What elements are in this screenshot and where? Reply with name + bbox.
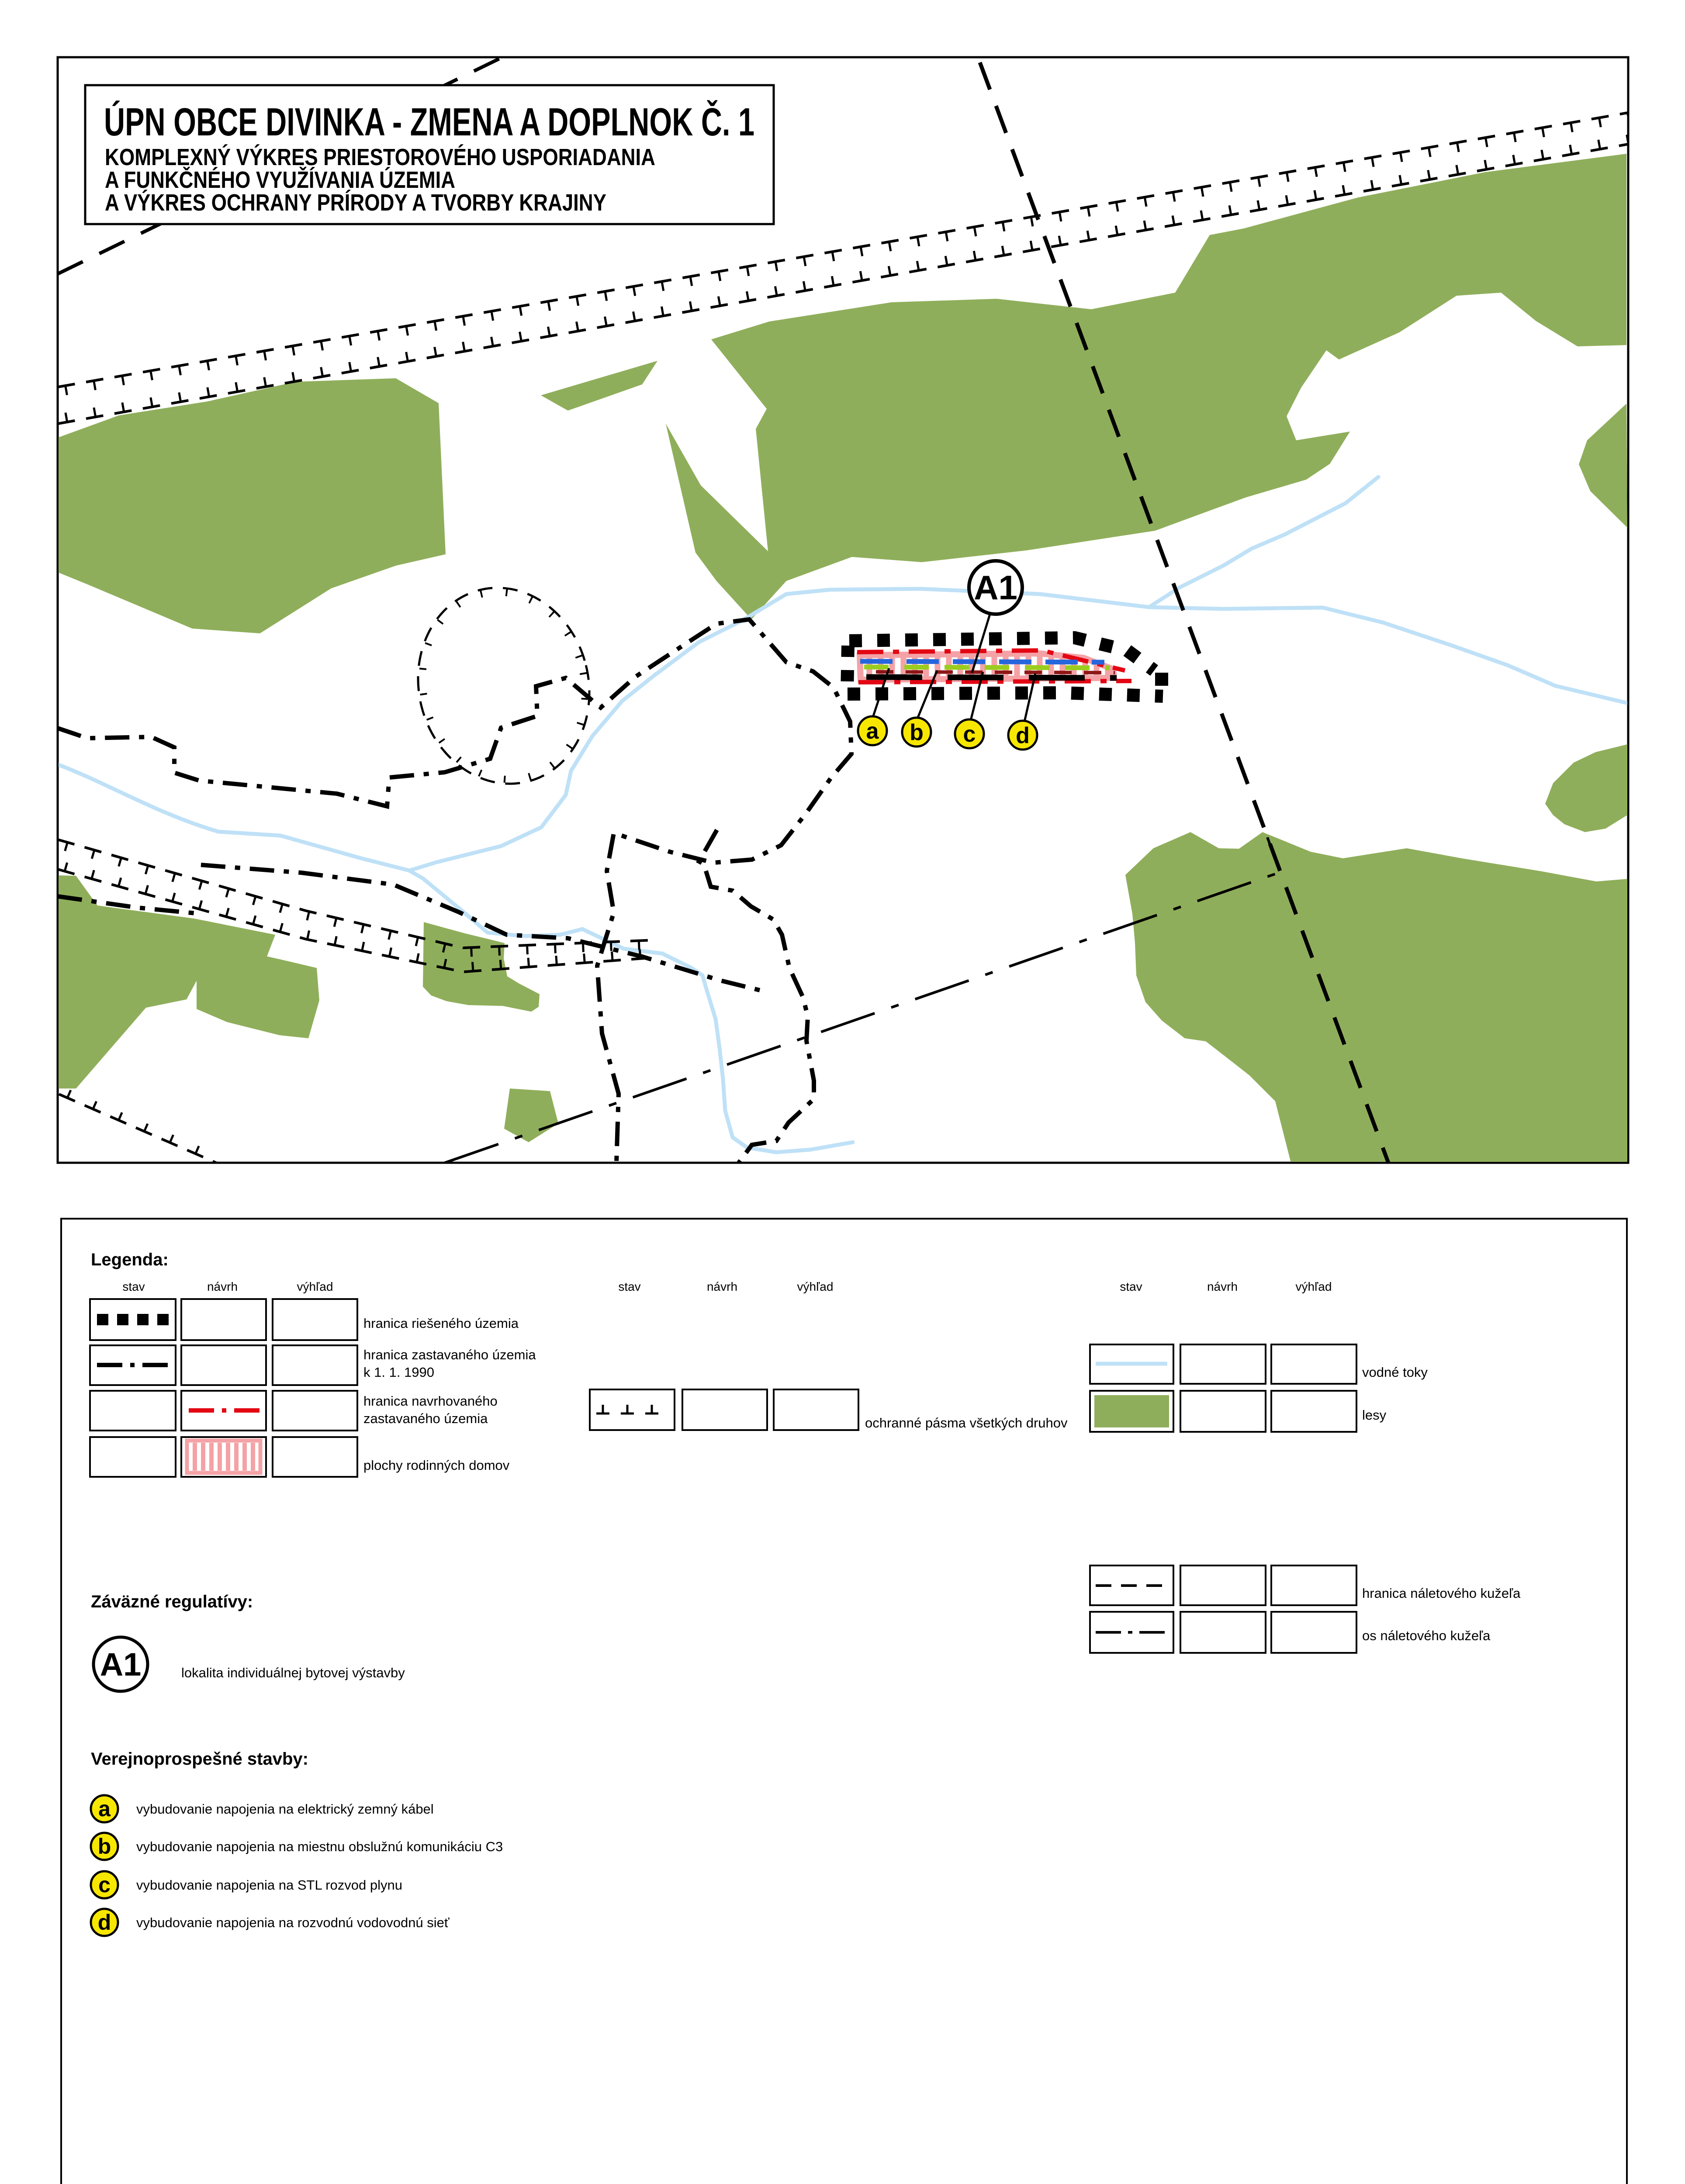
svg-text:návrh: návrh	[1207, 1280, 1238, 1293]
svg-text:výhľad: výhľad	[297, 1280, 333, 1293]
svg-text:stav: stav	[122, 1280, 145, 1293]
svg-text:os náletového kužeľa: os náletového kužeľa	[1362, 1628, 1491, 1643]
svg-text:hranica riešeného územia: hranica riešeného územia	[363, 1316, 519, 1331]
svg-text:d: d	[98, 1910, 111, 1935]
svg-text:A VÝKRES OCHRANY PRÍRODY A TVO: A VÝKRES OCHRANY PRÍRODY A TVORBY KRAJIN…	[105, 190, 606, 216]
svg-text:stav: stav	[618, 1280, 640, 1293]
svg-text:a: a	[866, 719, 879, 744]
svg-text:ÚPN OBCE DIVINKA - ZMENA A DOP: ÚPN OBCE DIVINKA - ZMENA A DOPLNOK Č. 1	[104, 100, 754, 144]
svg-text:výhľad: výhľad	[1296, 1280, 1332, 1293]
svg-text:Verejnoprospešné stavby:: Verejnoprospešné stavby:	[91, 1749, 308, 1769]
svg-text:k 1. 1. 1990: k 1. 1. 1990	[363, 1365, 434, 1380]
svg-text:hranica navrhovaného: hranica navrhovaného	[363, 1393, 498, 1409]
svg-text:vybudovanie napojenia na rozvo: vybudovanie napojenia na rozvodnú vodovo…	[136, 1915, 450, 1930]
svg-text:vybudovanie napojenia na STL r: vybudovanie napojenia na STL rozvod plyn…	[136, 1877, 402, 1893]
svg-text:a: a	[98, 1797, 111, 1821]
svg-text:lokalita individuálnej bytovej: lokalita individuálnej bytovej výstavby	[181, 1665, 405, 1680]
svg-text:KOMPLEXNÝ VÝKRES PRIESTOROVÉHO: KOMPLEXNÝ VÝKRES PRIESTOROVÉHO USPORIADA…	[105, 144, 655, 170]
svg-text:A FUNKČNÉHO VYUŽÍVANIA ÚZEMIA: A FUNKČNÉHO VYUŽÍVANIA ÚZEMIA	[105, 166, 455, 193]
svg-text:lesy: lesy	[1362, 1407, 1387, 1423]
svg-text:ochranné pásma všetkých druhov: ochranné pásma všetkých druhov	[865, 1415, 1068, 1431]
svg-text:hranica náletového kužeľa: hranica náletového kužeľa	[1362, 1586, 1521, 1601]
svg-text:c: c	[963, 722, 976, 747]
svg-text:výhľad: výhľad	[797, 1280, 834, 1293]
svg-text:d: d	[1016, 723, 1030, 748]
svg-text:hranica zastavaného územia: hranica zastavaného územia	[363, 1347, 536, 1362]
svg-text:A1: A1	[100, 1646, 142, 1683]
svg-text:vybudovanie napojenia na miest: vybudovanie napojenia na miestnu obslužn…	[136, 1839, 503, 1854]
svg-text:b: b	[910, 720, 924, 745]
svg-text:vybudovanie napojenia na elekt: vybudovanie napojenia na elektrický zemn…	[136, 1801, 434, 1817]
svg-text:Legenda:: Legenda:	[91, 1250, 169, 1269]
svg-text:A1: A1	[974, 568, 1017, 607]
svg-text:vodné toky: vodné toky	[1362, 1365, 1428, 1380]
svg-text:b: b	[98, 1834, 111, 1859]
svg-text:plochy rodinných domov: plochy rodinných domov	[363, 1458, 510, 1473]
svg-text:návrh: návrh	[207, 1280, 238, 1293]
svg-text:c: c	[98, 1873, 111, 1897]
svg-text:zastavaného územia: zastavaného územia	[363, 1411, 488, 1426]
svg-text:stav: stav	[1120, 1280, 1142, 1293]
svg-text:návrh: návrh	[707, 1280, 737, 1293]
svg-text:Záväzné regulatívy:: Záväzné regulatívy:	[91, 1592, 253, 1611]
